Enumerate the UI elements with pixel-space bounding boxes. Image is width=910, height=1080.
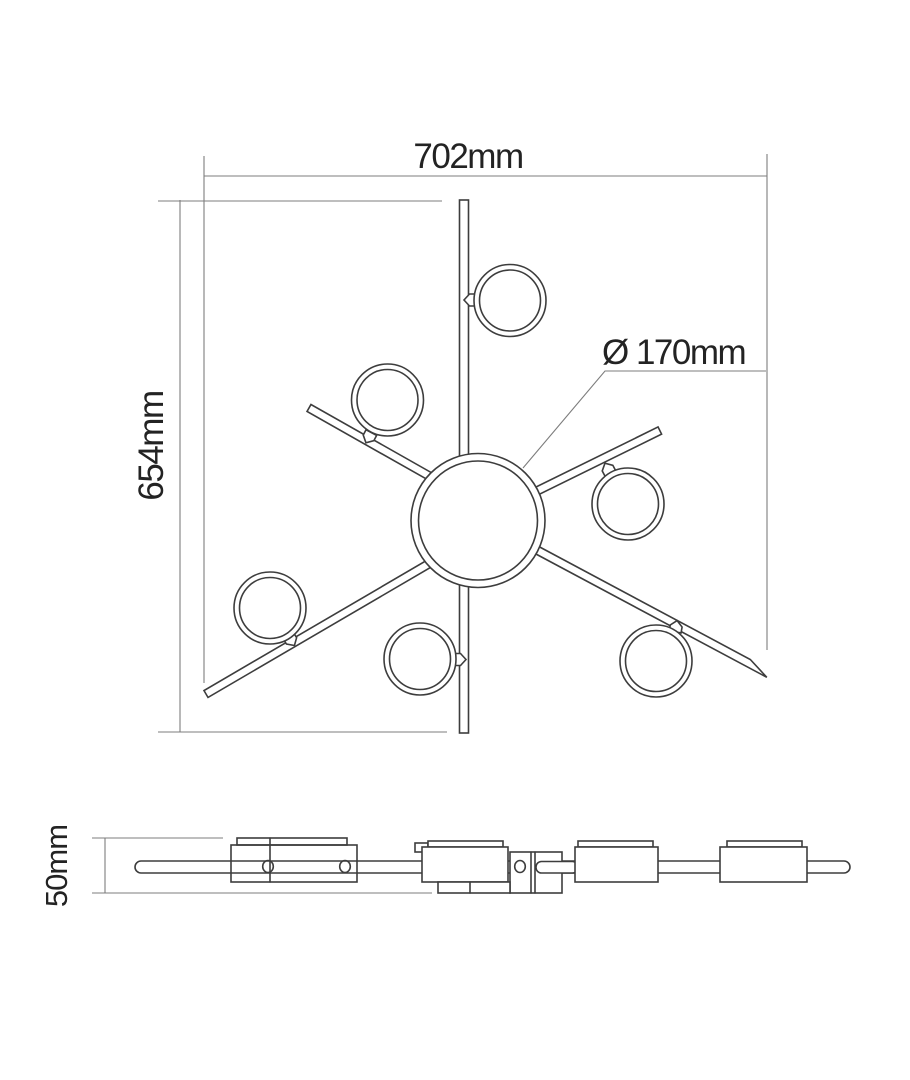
side-rod-stub	[536, 862, 578, 874]
side-view: 50mm	[39, 825, 850, 907]
dimension-diameter: Ø 170mm	[523, 333, 766, 468]
ring-bottom-middle	[384, 623, 466, 695]
drawing-page: 702mm 654mm Ø 170mm	[0, 0, 910, 1080]
width-label: 702mm	[413, 137, 522, 176]
top-view: 702mm 654mm Ø 170mm	[132, 137, 767, 733]
side-center-stem	[510, 852, 578, 893]
side-height-label: 50mm	[39, 825, 74, 907]
center-circle	[411, 454, 545, 588]
side-plate-1	[231, 838, 357, 882]
ring-bottom-right	[620, 620, 692, 697]
diameter-label: Ø 170mm	[602, 333, 745, 372]
technical-drawing: 702mm 654mm Ø 170mm	[0, 0, 910, 1080]
side-plate-2	[415, 841, 508, 882]
ring-right	[592, 460, 664, 540]
ring-left	[234, 572, 306, 649]
side-plate-4	[720, 841, 807, 882]
leader-line-diameter	[523, 371, 766, 468]
height-label: 654mm	[132, 391, 171, 500]
side-foot-bracket	[438, 882, 510, 893]
ring-top	[464, 265, 546, 337]
side-plate-3	[575, 841, 658, 882]
